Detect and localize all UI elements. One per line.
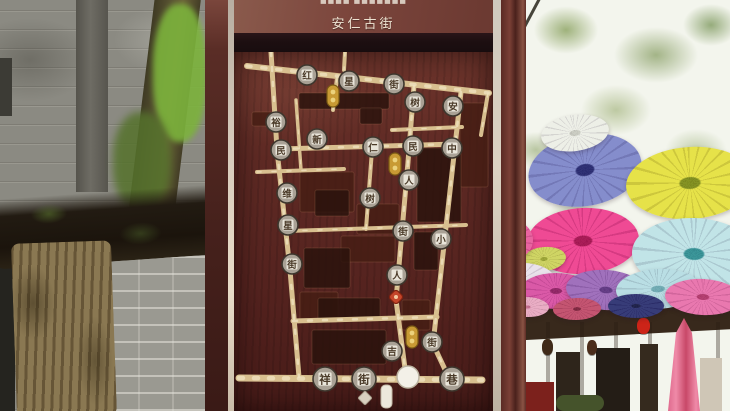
tree-trunk-lower — [11, 240, 117, 411]
sign-cropped-text: ■■■■ ■■■■■■■ — [234, 0, 493, 7]
medallion-character: 街 — [286, 259, 297, 271]
gold-badge-dot — [393, 166, 398, 171]
medallion-character: 安 — [448, 101, 458, 113]
legend-pill — [381, 385, 392, 408]
building-block — [315, 190, 349, 216]
medallion-character: 街 — [426, 337, 437, 349]
gold-badge-dot — [393, 158, 398, 163]
light-pillar — [700, 358, 722, 411]
sign-post-right — [501, 0, 526, 411]
building-block — [360, 108, 382, 124]
green-bush — [556, 395, 604, 411]
medallion-character: 仁 — [368, 142, 378, 154]
gold-badge-dot — [410, 331, 415, 336]
medallion-character: 巷 — [445, 373, 458, 387]
medallion-character: 民 — [276, 146, 286, 157]
gold-badge-marker — [327, 85, 339, 107]
sign-edge-highlight-right — [493, 0, 501, 411]
medallion-character: 祥 — [319, 373, 331, 387]
brick-wall-patch — [104, 245, 206, 411]
sign-post-left — [205, 0, 228, 411]
wall-pillar — [76, 0, 108, 192]
umbrella-ribs — [608, 294, 664, 318]
gold-badge-marker — [389, 153, 401, 175]
paper-umbrella — [608, 294, 664, 318]
hanging-lantern — [587, 340, 597, 355]
medallion-character: 街 — [357, 373, 370, 387]
medallion-character: 星 — [283, 221, 293, 232]
medallion-character: 红 — [302, 70, 312, 82]
medallion-character: 中 — [447, 143, 457, 155]
photo-anren-street-scene: ■■■■ ■■■■■■■ 安仁古街 红星街树安裕民新仁民中维星街树人街小人街吉祥… — [0, 0, 730, 411]
sign-title: 安仁古街 — [234, 13, 493, 32]
medallion-character: 树 — [365, 193, 375, 205]
medallion-character: 吉 — [387, 346, 397, 358]
gold-badge-dot — [331, 98, 336, 103]
gold-badge-dot — [331, 90, 336, 95]
sign-title-panel: ■■■■ ■■■■■■■ 安仁古街 — [234, 0, 493, 34]
hanging-lantern — [542, 339, 553, 355]
medallion-character: 新 — [312, 134, 322, 146]
legend-circle — [397, 366, 419, 388]
medallion-character: 裕 — [270, 117, 281, 129]
medallion-character: 小 — [435, 234, 446, 246]
building-block — [299, 93, 389, 109]
building-block — [304, 248, 350, 288]
medallion-character: 维 — [282, 188, 292, 200]
legend-diamond — [358, 391, 372, 405]
you-are-here-center — [394, 295, 398, 299]
sign-frame-band — [234, 33, 493, 54]
storefront-opening — [640, 344, 658, 411]
medallion-character: 树 — [410, 97, 420, 109]
wall-shadow — [0, 58, 12, 116]
medallion-character: 街 — [397, 226, 408, 238]
medallion-character: 人 — [392, 270, 402, 282]
medallion-character: 街 — [388, 79, 399, 91]
medallion-character: 人 — [404, 175, 414, 187]
medallion-character: 民 — [408, 142, 418, 153]
gold-badge-marker — [406, 326, 418, 348]
hanging-lantern — [637, 318, 650, 334]
street-map: 红星街树安裕民新仁民中维星街树人街小人街吉祥街巷 — [234, 52, 493, 411]
building-block — [312, 330, 386, 364]
gold-badge-dot — [410, 339, 415, 344]
medallion-character: 星 — [344, 77, 354, 88]
